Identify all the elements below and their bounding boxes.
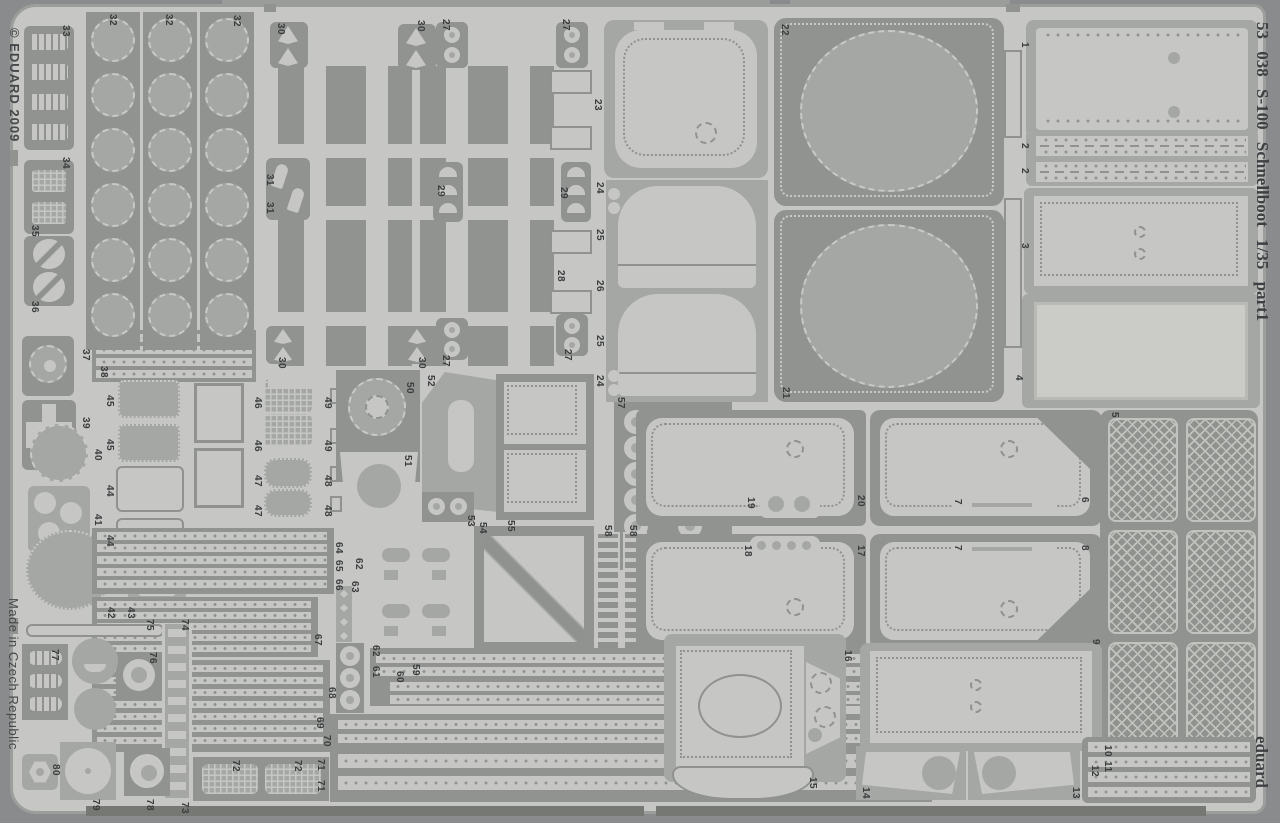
part-number-label: 4 — [1013, 375, 1024, 381]
part-number-label: 9 — [1090, 639, 1101, 645]
part-number-label: 29 — [558, 187, 569, 199]
part-number-label: 45 — [104, 439, 115, 451]
part-number-label: 2 — [1019, 143, 1030, 149]
part-number-label: 65 — [333, 560, 344, 572]
part-number-label: 58 — [627, 525, 638, 537]
part-number-label: 3 — [1019, 243, 1030, 249]
part-number-label: 72 — [230, 760, 241, 772]
part-number-label: 5 — [1109, 412, 1120, 418]
part-number-label: 32 — [163, 14, 174, 26]
part-number-label: 31 — [264, 202, 275, 214]
part-number-label: 30 — [415, 20, 426, 32]
part-number-label: 44 — [104, 535, 115, 547]
part-number-label: 64 — [333, 542, 344, 554]
part-number-label: 32 — [107, 14, 118, 26]
part-number-label: 45 — [104, 395, 115, 407]
part-number-label: 7 — [952, 499, 963, 505]
part-number-label: 24 — [594, 375, 605, 387]
part-number-label: 27 — [440, 355, 451, 367]
part-number-label: 8 — [1079, 545, 1090, 551]
part-number-label: 60 — [394, 671, 405, 683]
part-number-label: 25 — [594, 229, 605, 241]
part-number-label: 74 — [179, 619, 190, 631]
part-number-label: 34 — [60, 157, 71, 169]
part-number-label: 44 — [104, 485, 115, 497]
part-number-label: 27 — [560, 19, 571, 31]
part-number-label: 51 — [402, 455, 413, 467]
part-number-label: 19 — [745, 497, 756, 509]
part-number-label: 73 — [179, 802, 190, 814]
part-number-label: 14 — [860, 787, 871, 799]
part-number-label: 71 — [315, 780, 326, 792]
part-number-label: 33 — [60, 25, 71, 37]
part-number-label: 11 — [1102, 761, 1113, 773]
part-number-label: 47 — [252, 505, 263, 517]
part-number-label: 80 — [50, 764, 61, 776]
part-number-label: 67 — [312, 634, 323, 646]
part-number-label: 27 — [440, 19, 451, 31]
part-number-label: 42 — [105, 607, 116, 619]
part-number-label: 10 — [1102, 745, 1113, 757]
part-number-label: 37 — [80, 349, 91, 361]
part-number-label: 18 — [742, 545, 753, 557]
part-number-label: 50 — [404, 382, 415, 394]
part-number-label: 53 — [465, 515, 476, 527]
part-number-label: 46 — [252, 397, 263, 409]
part-number-label: 58 — [602, 525, 613, 537]
part-number-label: 59 — [410, 664, 421, 676]
part-number-label: 72 — [292, 760, 303, 772]
part-number-label: 62 — [370, 645, 381, 657]
part-number-label: 16 — [842, 650, 853, 662]
part-number-label: 70 — [321, 735, 332, 747]
part-number-label: 75 — [144, 619, 155, 631]
part-number-label: 30 — [416, 357, 427, 369]
sheet-title-text: 53 038 S-100 Schnellboot 1/35 part1 — [1252, 22, 1272, 321]
part-number-label: 49 — [322, 440, 333, 452]
labels-layer: 3332323230302727343536313129292830302727… — [0, 0, 1280, 823]
part-number-label: 47 — [252, 475, 263, 487]
part-number-label: 23 — [592, 99, 603, 111]
part-number-label: 20 — [855, 495, 866, 507]
part-number-label: 7 — [952, 545, 963, 551]
part-number-label: 68 — [326, 687, 337, 699]
part-number-label: 41 — [92, 514, 103, 526]
part-number-label: 52 — [425, 375, 436, 387]
part-number-label: 17 — [855, 545, 866, 557]
part-number-label: 21 — [780, 387, 791, 399]
part-number-label: 32 — [231, 15, 242, 27]
part-number-label: 79 — [90, 799, 101, 811]
part-number-label: 71 — [315, 759, 326, 771]
part-number-label: 43 — [125, 607, 136, 619]
part-number-label: 78 — [144, 799, 155, 811]
part-number-label: 54 — [477, 522, 488, 534]
part-number-label: 30 — [275, 23, 286, 35]
part-number-label: 36 — [29, 301, 40, 313]
part-number-label: 76 — [147, 652, 158, 664]
part-number-label: 61 — [370, 666, 381, 678]
part-number-label: 1 — [1019, 42, 1030, 48]
made-in-text: Made in Czech Republic — [6, 598, 21, 750]
part-number-label: 13 — [1070, 787, 1081, 799]
part-number-label: 30 — [276, 357, 287, 369]
part-number-label: 48 — [322, 505, 333, 517]
part-number-label: 25 — [594, 335, 605, 347]
part-number-label: 35 — [29, 225, 40, 237]
part-number-label: 66 — [333, 579, 344, 591]
part-number-label: 46 — [252, 440, 263, 452]
part-number-label: 62 — [353, 558, 364, 570]
part-number-label: 2 — [1019, 168, 1030, 174]
brand-logo-text: eduard — [1251, 736, 1271, 788]
part-number-label: 22 — [779, 24, 790, 36]
part-number-label: 24 — [594, 182, 605, 194]
part-number-label: 26 — [594, 280, 605, 292]
part-number-label: 38 — [98, 366, 109, 378]
part-number-label: 48 — [322, 475, 333, 487]
part-number-label: 28 — [555, 270, 566, 282]
part-number-label: 27 — [562, 349, 573, 361]
part-number-label: 31 — [264, 174, 275, 186]
part-number-label: 40 — [92, 449, 103, 461]
part-number-label: 49 — [322, 397, 333, 409]
part-number-label: 63 — [349, 581, 360, 593]
part-number-label: 77 — [49, 649, 60, 661]
part-number-label: 69 — [314, 717, 325, 729]
pe-fret-photo: 3332323230302727343536313129292830302727… — [0, 0, 1280, 823]
part-number-label: 39 — [80, 417, 91, 429]
part-number-label: 57 — [615, 397, 626, 409]
part-number-label: 15 — [807, 777, 818, 789]
part-number-label: 29 — [435, 185, 446, 197]
part-number-label: 12 — [1089, 765, 1100, 777]
copyright-text: © EDUARD 2009 — [7, 28, 22, 142]
part-number-label: 6 — [1079, 497, 1090, 503]
part-number-label: 55 — [505, 520, 516, 532]
